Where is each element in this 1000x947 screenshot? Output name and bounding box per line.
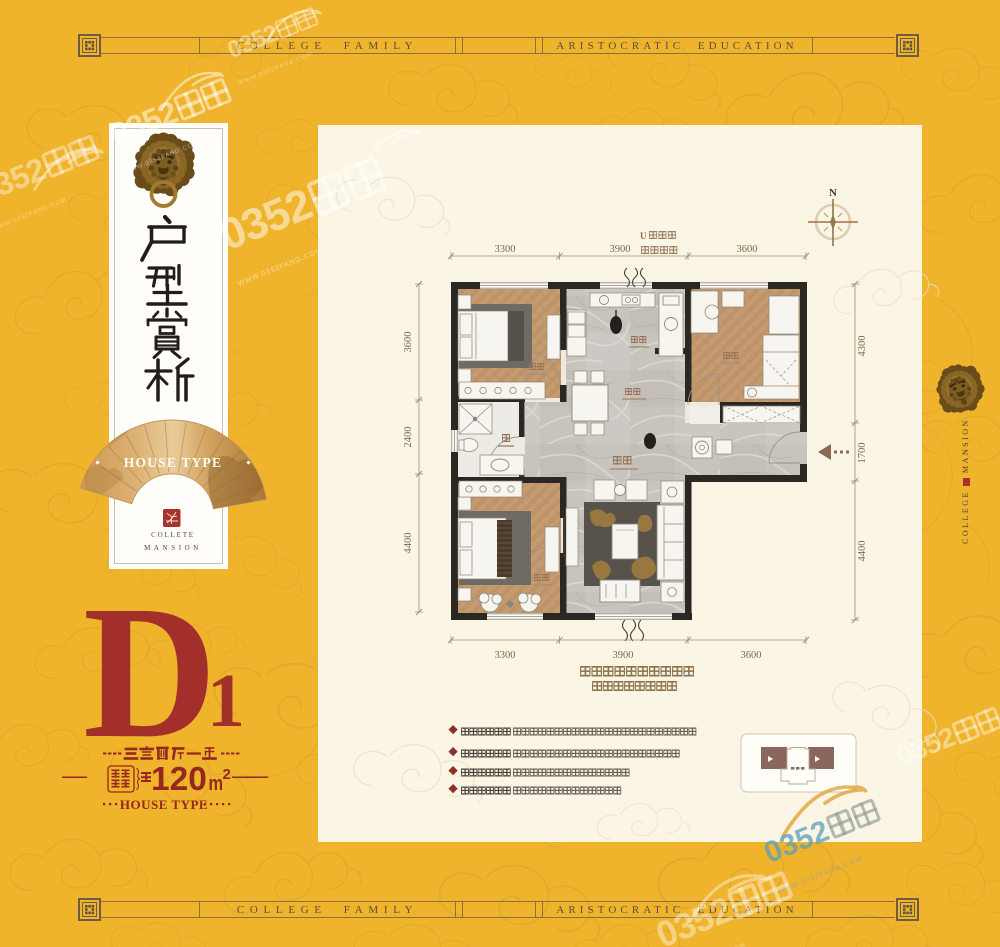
svg-text:U: U <box>640 231 647 241</box>
svg-text:4400: 4400 <box>403 533 414 554</box>
svg-text:3300: 3300 <box>495 650 516 661</box>
svg-text:3900: 3900 <box>613 650 634 661</box>
svg-text:4400: 4400 <box>857 541 868 562</box>
svg-text:3600: 3600 <box>741 650 762 661</box>
svg-text:3600: 3600 <box>403 332 414 353</box>
svg-text:4300: 4300 <box>857 336 868 357</box>
svg-text:2400: 2400 <box>403 427 414 448</box>
svg-text:3300: 3300 <box>495 244 516 255</box>
svg-text:3900: 3900 <box>610 244 631 255</box>
svg-text:1700: 1700 <box>857 443 868 464</box>
svg-text:N: N <box>829 187 837 199</box>
svg-text:3600: 3600 <box>737 244 758 255</box>
